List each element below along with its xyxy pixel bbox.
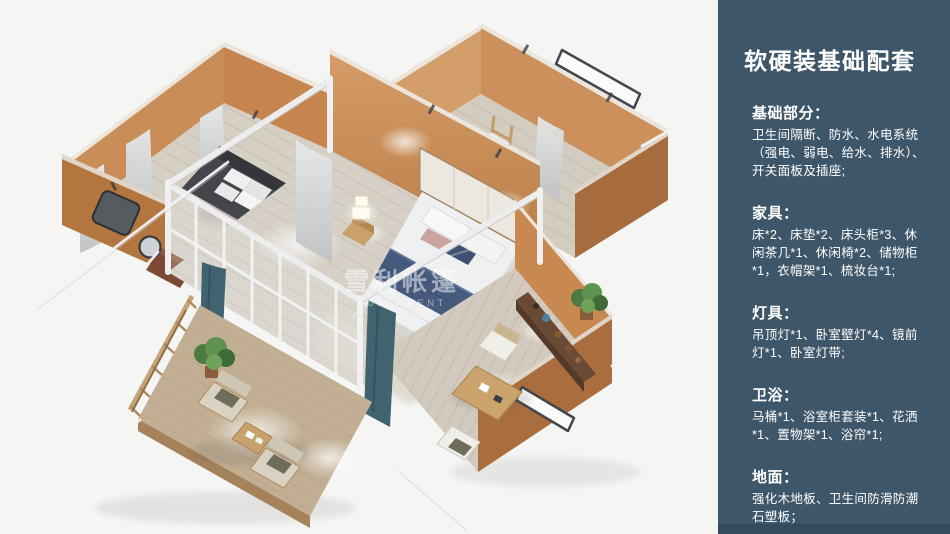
section-lighting: 灯具： 吊顶灯*1、卧室壁灯*4、镜前灯*1、卧室灯带; (752, 302, 926, 362)
section-flooring-heading: 地面： (752, 466, 926, 487)
section-basics-heading: 基础部分： (752, 102, 926, 123)
watermark-cn: 雪利帐篷 (344, 267, 460, 296)
sidebar-bottom-shade (718, 524, 950, 534)
section-basics-body: 卫生间隔断、防水、水电系统（强电、弱电、给水、排水）、开关面板及插座; (752, 126, 926, 180)
slide-canvas: 雪利帐篷 XUELI TENT 软硬装基础配套 基础部分： 卫生间隔断、防水、水… (0, 0, 950, 534)
teal-curtain-right (364, 300, 396, 427)
watermark-en: XUELI TENT (357, 298, 447, 309)
section-basics: 基础部分： 卫生间隔断、防水、水电系统（强电、弱电、给水、排水）、开关面板及插座… (752, 102, 926, 180)
section-lighting-body: 吊顶灯*1、卧室壁灯*4、镜前灯*1、卧室灯带; (752, 326, 926, 362)
spec-sidebar: 软硬装基础配套 基础部分： 卫生间隔断、防水、水电系统（强电、弱电、给水、排水）… (718, 0, 950, 534)
section-furniture-body: 床*2、床垫*2、床头柜*3、休闲茶几*1、休闲椅*2、储物柜*1，衣帽架*1、… (752, 226, 926, 280)
bedroom-nw-curtain (296, 140, 332, 262)
section-furniture-heading: 家具： (752, 202, 926, 223)
sidebar-title: 软硬装基础配套 (744, 42, 926, 76)
section-lighting-heading: 灯具： (752, 302, 926, 323)
section-bathroom: 卫浴： 马桶*1、浴室柜套装*1、花洒*1、置物架*1、浴帘*1; (752, 384, 926, 444)
floorplan-3d-render: 雪利帐篷 XUELI TENT (0, 0, 718, 534)
section-bathroom-heading: 卫浴： (752, 384, 926, 405)
ground-shadows (95, 457, 640, 524)
section-bathroom-body: 马桶*1、浴室柜套装*1、花洒*1、置物架*1、浴帘*1; (752, 408, 926, 444)
section-flooring: 地面： 强化木地板、卫生间防滑防潮石塑板； (752, 466, 926, 526)
section-flooring-body: 强化木地板、卫生间防滑防潮石塑板； (752, 490, 926, 526)
section-furniture: 家具： 床*2、床垫*2、床头柜*3、休闲茶几*1、休闲椅*2、储物柜*1，衣帽… (752, 202, 926, 280)
